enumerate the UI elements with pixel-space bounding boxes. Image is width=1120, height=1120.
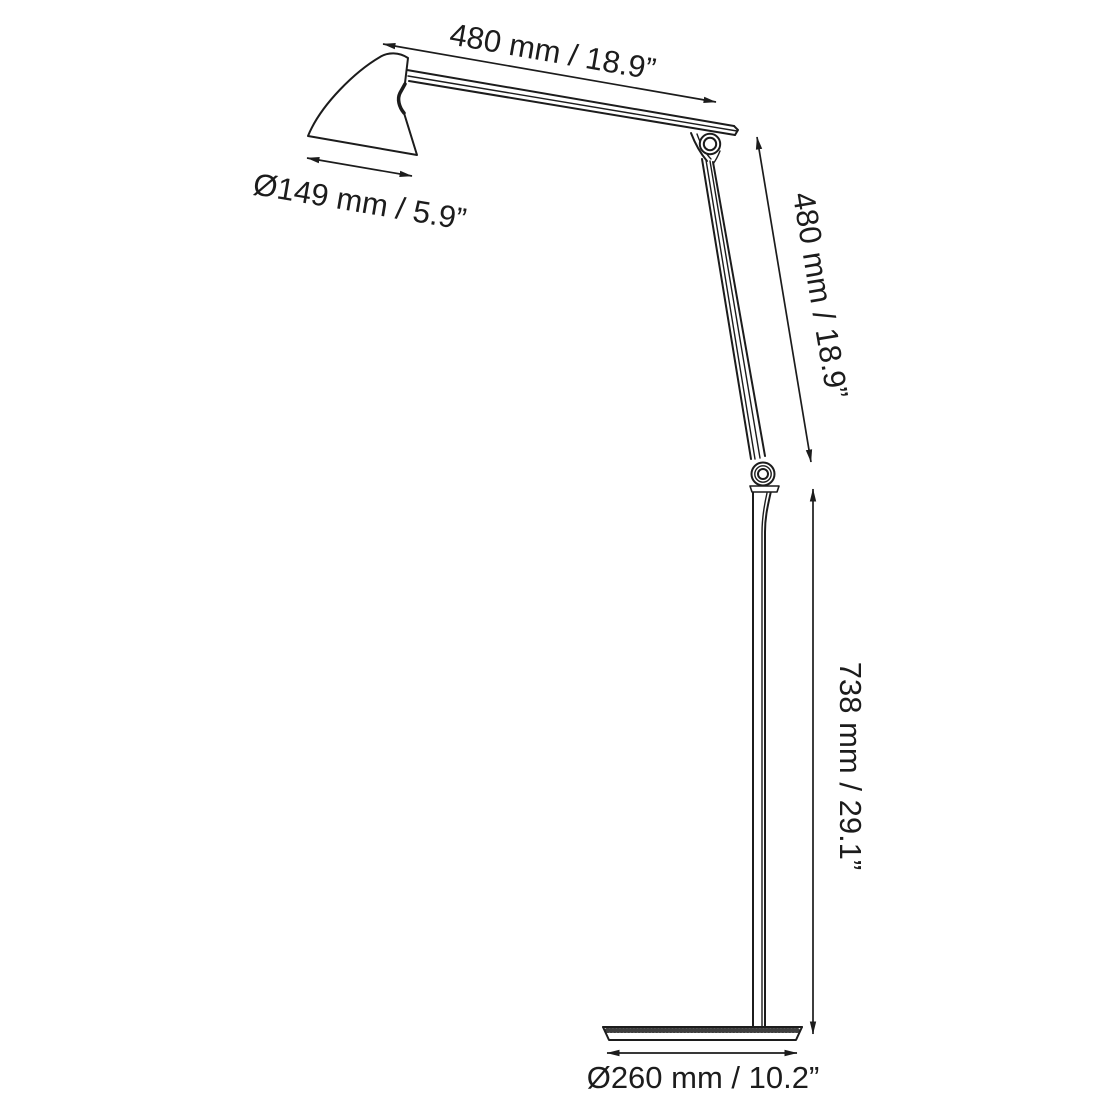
dim-line-shade-diameter	[307, 158, 412, 176]
knee-joint	[750, 463, 779, 493]
diagonal-arm-edge-right	[713, 162, 765, 456]
diagonal-arm-edge-left	[702, 159, 751, 459]
dim-label-shade-diameter: Ø149 mm / 5.9”	[251, 166, 469, 236]
dim-label-arm-top: 480 mm / 18.9”	[447, 16, 658, 86]
dim-label-stem-height: 738 mm / 29.1”	[833, 662, 868, 870]
dim-line-arm-diagonal	[757, 137, 811, 462]
dimension-annotations: 480 mm / 18.9” Ø149 mm / 5.9” 480 mm / 1…	[251, 16, 868, 1095]
diagonal-arm-line-inner2	[710, 161, 760, 458]
lamp-dimension-diagram: 480 mm / 18.9” Ø149 mm / 5.9” 480 mm / 1…	[0, 0, 1120, 1120]
dim-label-base-diameter: Ø260 mm / 10.2”	[587, 1060, 820, 1095]
upper-arm-edge-top	[407, 70, 734, 126]
knee-joint-inner-ring	[758, 469, 768, 479]
elbow-joint-inner-ring	[704, 138, 716, 150]
lamp-head	[308, 53, 417, 155]
lamp-base	[603, 1027, 802, 1040]
diagonal-arm-line-inner1	[706, 160, 755, 459]
elbow-joint	[691, 133, 720, 164]
lamp-arm-diagonal	[702, 159, 765, 459]
lamp-stem	[753, 491, 771, 1027]
stem-edge-right	[765, 491, 771, 1027]
knee-cap-plate	[750, 486, 779, 492]
upper-arm-line-inner	[408, 76, 737, 131]
upper-arm-edge-bottom	[409, 81, 735, 135]
lamp-arm-upper	[407, 70, 738, 135]
